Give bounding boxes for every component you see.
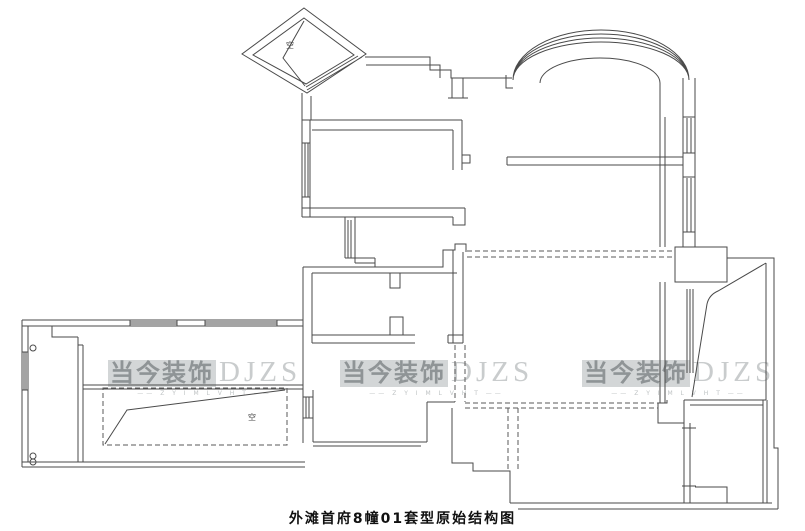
north-wall-cap [448,78,468,98]
stair-rail-hatch [687,289,693,373]
floor-plan-page: 当今装饰 DJZS —— Z Y I M L V H T —— 当今装饰 DJZ… [0,0,805,531]
stair-funnel [692,263,766,400]
pipe-circle [30,345,36,351]
east-wall-lower [682,423,696,503]
living-partition-wall [507,157,683,165]
dashed-beam-vertical-right [508,408,518,470]
upper-pier [675,247,727,282]
dashed-beam-vertical-left [455,345,465,402]
step-wall-center [313,402,510,503]
diamond-bay-window [242,8,366,93]
bathroom-outline [303,244,466,358]
pipe-circle [30,453,36,459]
bathroom-corridor-wall [345,217,375,267]
east-wall-mid [660,282,665,403]
east-outer-boundary [727,258,778,509]
north-wall [365,57,512,78]
drawing-title: 外滩首府8幢01套型原始结构图 [0,508,805,528]
middle-room [302,93,470,225]
entry-corridor-wall [302,95,311,120]
arch-window-band [506,30,689,88]
southeast-room [684,400,767,503]
dashed-beam-upper [467,251,675,257]
void-outline [103,388,287,445]
east-wall-upper [683,78,695,247]
void-label: 空 [248,412,256,422]
void-label: 空 [286,40,294,50]
arch-inner-wall [540,58,665,247]
dashed-beam-horizontal [465,403,658,408]
west-windows [22,320,313,418]
void-diagonal [105,390,285,444]
bathroom-stub-walls [390,273,403,335]
floor-plan-svg: 空空 [0,0,805,531]
lower-pier [658,400,684,423]
